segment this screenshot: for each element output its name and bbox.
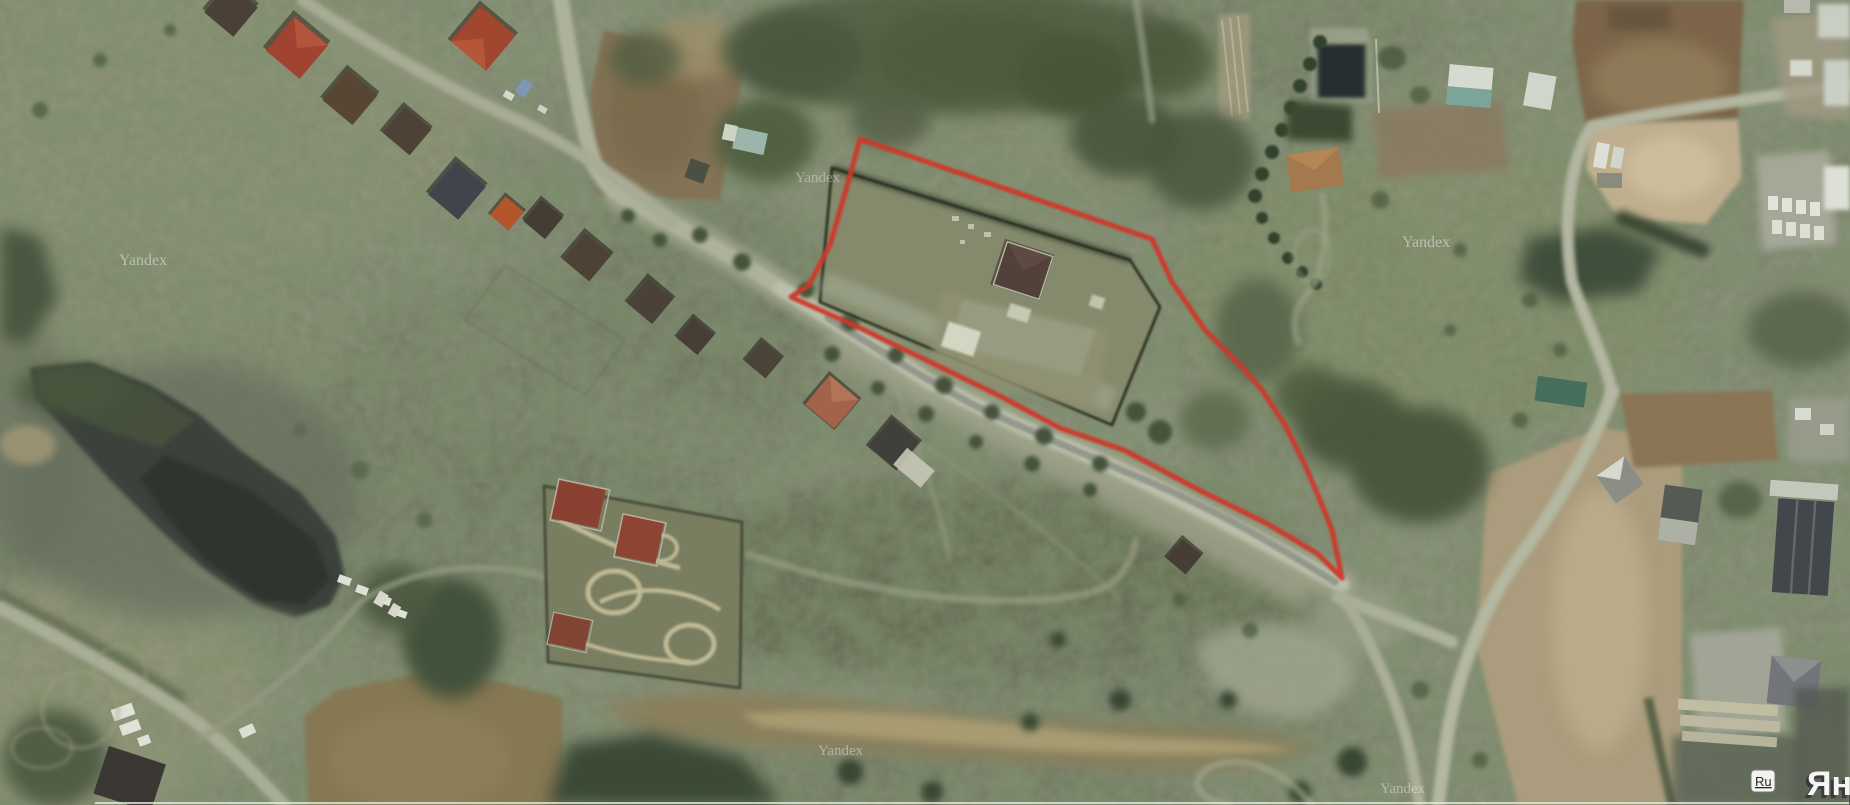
svg-text:Янд: Янд xyxy=(1807,765,1850,803)
svg-text:Yandex: Yandex xyxy=(119,252,167,269)
svg-text:Yandex: Yandex xyxy=(1380,781,1426,797)
svg-text:Yandex: Yandex xyxy=(818,743,864,759)
svg-text:Ru: Ru xyxy=(1755,774,1772,789)
svg-text:Yandex: Yandex xyxy=(795,170,841,186)
svg-text:Yandex: Yandex xyxy=(1402,234,1450,251)
